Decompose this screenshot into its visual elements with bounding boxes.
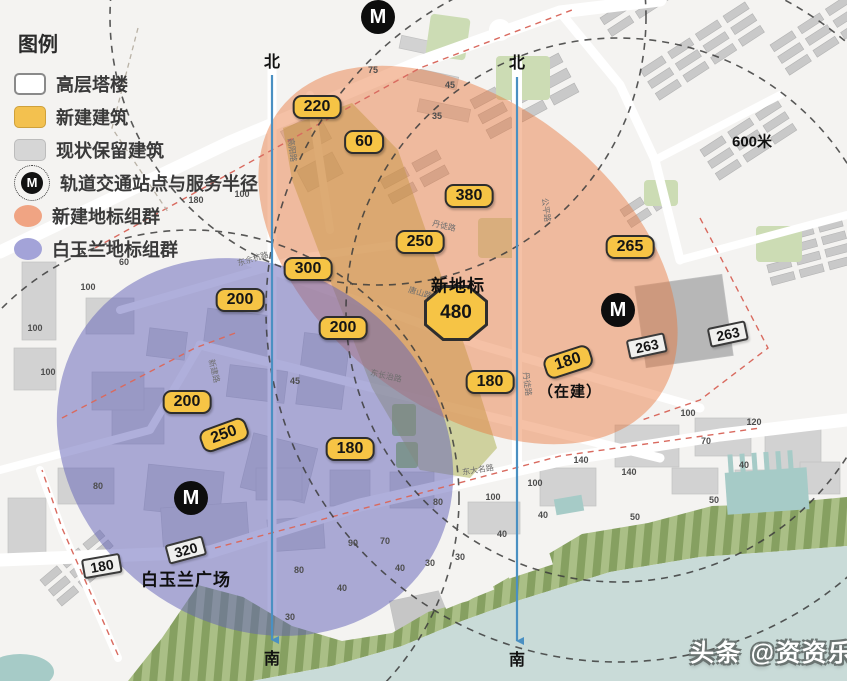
building-height: 100	[27, 323, 42, 333]
metro-station-marker: M	[601, 293, 635, 327]
height-badge: 200	[163, 390, 212, 414]
height-badge: 60	[344, 130, 384, 154]
area-label: 新地标	[431, 272, 485, 297]
magnolia-swatch	[14, 238, 42, 260]
building-height: 35	[432, 111, 442, 121]
building-height: 45	[445, 80, 455, 90]
tower-swatch	[14, 73, 46, 95]
building-height: 100	[80, 282, 95, 292]
planning-map: 图例 高层塔楼 新建建筑 现状保留建筑 M 轨道交通站点与服务半径 新建地标组群…	[0, 0, 847, 681]
legend-item-new-landmark: 新建地标组群	[14, 199, 314, 232]
scale-label: 600米	[732, 131, 772, 152]
legend-item-new-building: 新建建筑	[14, 100, 314, 133]
building-height: 45	[290, 376, 300, 386]
legend: 图例 高层塔楼 新建建筑 现状保留建筑 M 轨道交通站点与服务半径 新建地标组群…	[14, 28, 314, 265]
building-height: 40	[395, 563, 405, 573]
height-badge: 180	[326, 437, 375, 461]
building-height: 30	[285, 612, 295, 622]
watermark: 头条 @资资乐	[690, 633, 847, 668]
height-badge: 250	[396, 230, 445, 254]
legend-item-magnolia: 白玉兰地标组群	[14, 232, 314, 265]
height-badge: 380	[445, 184, 494, 208]
metro-station-marker: M	[361, 0, 395, 34]
building-height: 100	[40, 367, 55, 377]
building-height: 140	[573, 455, 588, 465]
building-height: 30	[425, 558, 435, 568]
height-badge: 200	[319, 316, 368, 340]
building-height: 70	[380, 536, 390, 546]
building-height: 50	[709, 495, 719, 505]
legend-title: 图例	[18, 28, 314, 57]
north-label: 北	[509, 49, 525, 73]
area-label: （在建）	[538, 381, 602, 402]
height-badge: 180	[466, 370, 515, 394]
existing-building-swatch	[14, 139, 46, 161]
building-height: 80	[93, 481, 103, 491]
building-height: 40	[739, 460, 749, 470]
building-height: 90	[348, 538, 358, 548]
legend-item-metro: M 轨道交通站点与服务半径	[14, 166, 314, 199]
height-badge: 265	[606, 235, 655, 259]
south-label: 南	[264, 645, 280, 669]
building-height: 100	[527, 478, 542, 488]
new-landmark-swatch	[14, 205, 42, 227]
area-label: 白玉兰广场	[141, 566, 231, 591]
legend-item-existing-building: 现状保留建筑	[14, 133, 314, 166]
building-height: 80	[433, 497, 443, 507]
building-height: 100	[680, 408, 695, 418]
metro-station-icon: M	[14, 165, 50, 201]
building-height: 50	[630, 512, 640, 522]
building-height: 120	[746, 417, 761, 427]
metro-station-marker: M	[174, 481, 208, 515]
building-height: 140	[621, 467, 636, 477]
building-height: 40	[337, 583, 347, 593]
building-height: 40	[538, 510, 548, 520]
building-height: 30	[455, 552, 465, 562]
building-height: 40	[497, 529, 507, 539]
new-building-swatch	[14, 106, 46, 128]
building-height: 75	[368, 65, 378, 75]
building-height: 70	[701, 436, 711, 446]
building-height: 100	[485, 492, 500, 502]
height-badge: 200	[216, 288, 265, 312]
legend-item-tower: 高层塔楼	[14, 67, 314, 100]
south-label: 南	[509, 646, 525, 670]
building-height: 80	[294, 565, 304, 575]
